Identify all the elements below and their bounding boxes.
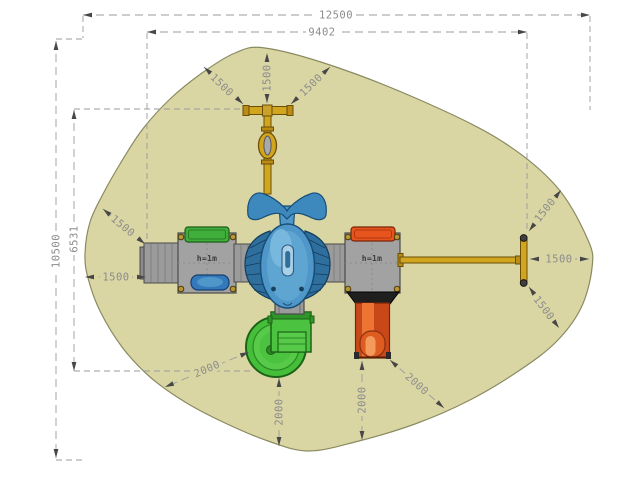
blue-panel-inner <box>197 277 223 287</box>
corner-post <box>345 286 351 292</box>
dimension-10500: 10500 <box>50 41 63 458</box>
dimension-label: 2000 <box>274 398 286 425</box>
slide-funnel <box>347 292 399 304</box>
plan-drawing: h=1m h=1m 125009402105006531150015001500… <box>0 0 640 480</box>
green-canopy <box>185 227 229 242</box>
pole-collar <box>262 160 274 164</box>
crossbar-cap <box>243 106 249 116</box>
corner-post <box>178 234 184 240</box>
corner-post <box>394 286 400 292</box>
dimension-label: 9402 <box>308 27 335 39</box>
dimension-6531: 6531 <box>68 110 81 371</box>
dimension-arrow <box>72 362 77 371</box>
dimension-9402: 9402 <box>147 26 527 39</box>
crossbar-joint <box>263 105 273 116</box>
dimension-label: 2000 <box>357 386 369 413</box>
right-platform-height-label: h=1m <box>362 254 382 263</box>
orange-canopy <box>351 227 395 241</box>
end-post <box>521 237 528 283</box>
dimension-arrow <box>54 449 59 458</box>
tower-lug <box>310 316 314 323</box>
tube-foot <box>354 352 359 359</box>
dimension-label: 6531 <box>69 225 81 252</box>
dimension-arrow <box>83 13 92 18</box>
left-platform-height-label: h=1m <box>197 254 217 263</box>
corner-post <box>178 286 184 292</box>
corner-post <box>345 234 351 240</box>
drawing-svg: h=1m h=1m 125009402105006531150015001500… <box>0 0 640 480</box>
post-ball <box>520 280 527 287</box>
dimension-arrow <box>147 30 156 35</box>
dolphin-climber <box>245 193 330 308</box>
horizontal-bar <box>400 257 521 263</box>
corner-post <box>230 234 236 240</box>
dolphin-eye-right <box>299 287 304 292</box>
dimension-label: 1500 <box>262 64 274 91</box>
dolphin-handle-slot <box>285 251 290 268</box>
dolphin-eye-left <box>271 287 276 292</box>
tube-foot <box>386 352 391 359</box>
crossbar-cap <box>287 106 293 116</box>
tower-lug <box>268 316 272 323</box>
walkway-deck <box>144 243 180 283</box>
corner-post <box>230 286 236 292</box>
dimension-label: 1500 <box>102 272 129 284</box>
dimension-label: 1500 <box>545 254 572 266</box>
post-ball <box>520 235 527 242</box>
steering-wheel-hub <box>264 136 271 155</box>
dimension-arrow <box>72 110 77 119</box>
dimension-arrow <box>54 41 59 50</box>
dimension-12500: 12500 <box>83 9 590 22</box>
tower-hatch <box>278 332 306 352</box>
corner-post <box>394 234 400 240</box>
dimension-label: 12500 <box>319 10 353 22</box>
dimension-label: 10500 <box>51 234 63 268</box>
tube-opening-highlight <box>366 336 376 356</box>
pole-collar <box>262 127 274 131</box>
dimension-arrow <box>518 30 527 35</box>
dimension-arrow <box>581 13 590 18</box>
